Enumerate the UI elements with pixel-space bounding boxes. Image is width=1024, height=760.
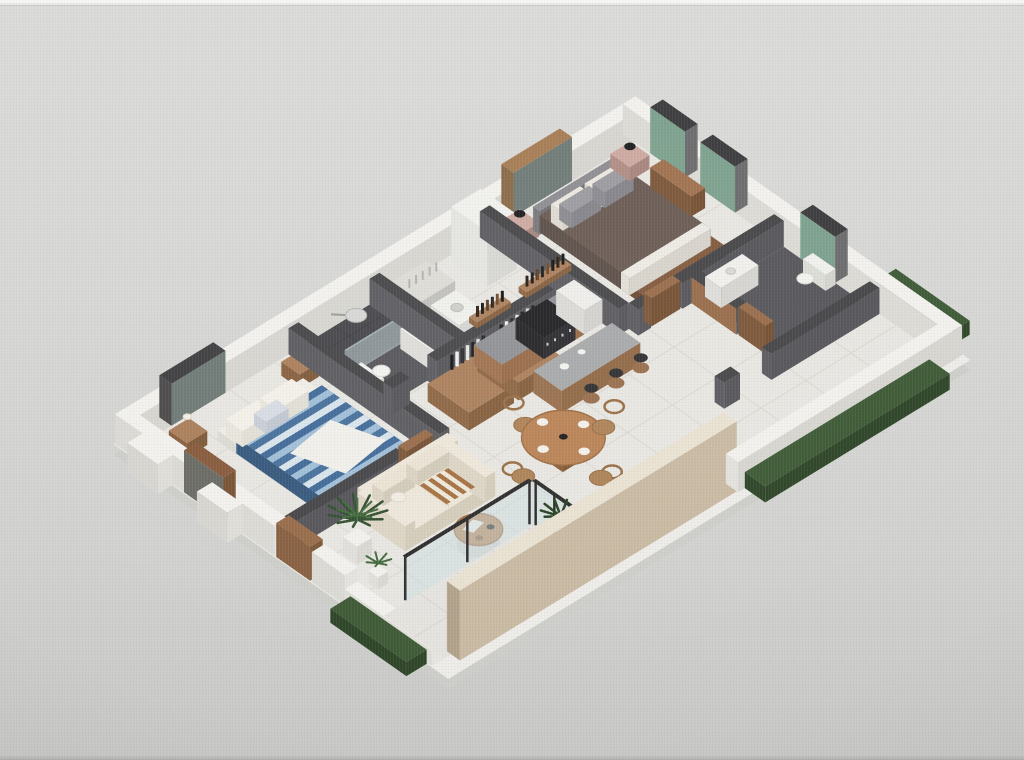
closet-hanging-clothes-left-mark <box>461 348 465 363</box>
glass-door-mullions-mark <box>528 480 531 524</box>
master-headboard-southwest-face <box>533 207 540 236</box>
toilet-bowl <box>373 365 391 377</box>
stool-2-seat <box>609 368 623 377</box>
screen-bottom-edge-shadow <box>0 755 1024 760</box>
bedroom2-lamp-left <box>183 414 192 420</box>
laundry-rack-slats-mark <box>415 275 417 284</box>
stool-3-base <box>632 362 649 373</box>
laundry-rack-slats-mark <box>429 267 431 276</box>
master-vase-left <box>514 210 525 218</box>
dining-centerpiece <box>559 434 568 440</box>
window-master-northeast-2-southeast-face <box>735 159 748 213</box>
window-bedroom2-northwest-southwest-face <box>159 375 171 426</box>
glass-door-mullions-mark <box>466 518 469 562</box>
island-dish-1 <box>560 363 570 369</box>
kitchen-bottles-left-mark <box>486 300 489 311</box>
stove-knobs-mark <box>562 334 564 337</box>
kitchen-bottles-left-mark <box>476 306 479 317</box>
glass-door-mullions-mark <box>404 556 407 600</box>
stool-1-base <box>583 393 600 404</box>
master-door-southwest-face <box>644 293 652 327</box>
kitchen-bottles-right-mark <box>541 266 544 277</box>
sofa-pillow-white <box>391 492 406 502</box>
dining-plate-south <box>579 448 590 456</box>
kitchen-bottles-right-mark <box>531 273 534 284</box>
dining-plate-north <box>537 418 548 426</box>
kitchen-bottles-right-mark <box>562 254 565 265</box>
closet-hanging-clothes-left-mark <box>455 352 459 367</box>
dining-chair-east-seat <box>592 420 615 435</box>
stove-knobs-mark <box>554 338 556 341</box>
screen-photo: { "meta": {"subject": "3D isometric cuta… <box>0 0 1024 760</box>
master-vase-right <box>624 143 635 151</box>
stool-1-seat <box>584 384 598 393</box>
stool-2-base <box>608 378 625 389</box>
kitchen-bottles-right-mark <box>536 269 539 280</box>
closet-hanging-clothes-left-mark <box>466 345 470 360</box>
kitchen-bottles-right-mark <box>551 260 554 271</box>
floor-plan-rendering <box>0 0 1024 760</box>
shower-head <box>346 308 367 322</box>
laundry-rack-slats-mark <box>408 279 410 288</box>
kitchen-bottles-left-mark <box>481 303 484 314</box>
kitchen-bottles-left-mark <box>491 297 494 308</box>
kitchen-bottles-right-mark <box>546 263 549 274</box>
kitchen-bottles-right-mark <box>556 257 559 268</box>
kitchen-bottles-left-mark <box>501 291 504 302</box>
laundry-rack-slats-mark <box>435 263 437 272</box>
stool-3-seat <box>634 353 648 362</box>
island-dish-2 <box>578 349 586 354</box>
kitchen-bottles-right-mark <box>526 276 529 287</box>
window-master-northeast-1-southeast-face <box>685 124 698 178</box>
ensuite-toilet-bowl <box>797 273 814 284</box>
glass-return-mullions-mark <box>534 481 537 525</box>
closet-hanging-clothes-left-mark <box>450 355 454 370</box>
dining-plate-west <box>537 445 548 453</box>
laundry-rack-slats-mark <box>422 271 424 280</box>
window-ensuite-northeast-southeast-face <box>835 229 848 283</box>
washer-door <box>451 303 463 311</box>
kitchen-bottles-left-mark <box>496 294 499 305</box>
stove-knobs-mark <box>547 343 549 346</box>
dining-plate-east <box>578 421 589 429</box>
stove-knobs-mark <box>569 329 571 332</box>
ensuite-basin <box>726 268 736 274</box>
wall-tan-tall-southwest-face <box>447 581 460 660</box>
